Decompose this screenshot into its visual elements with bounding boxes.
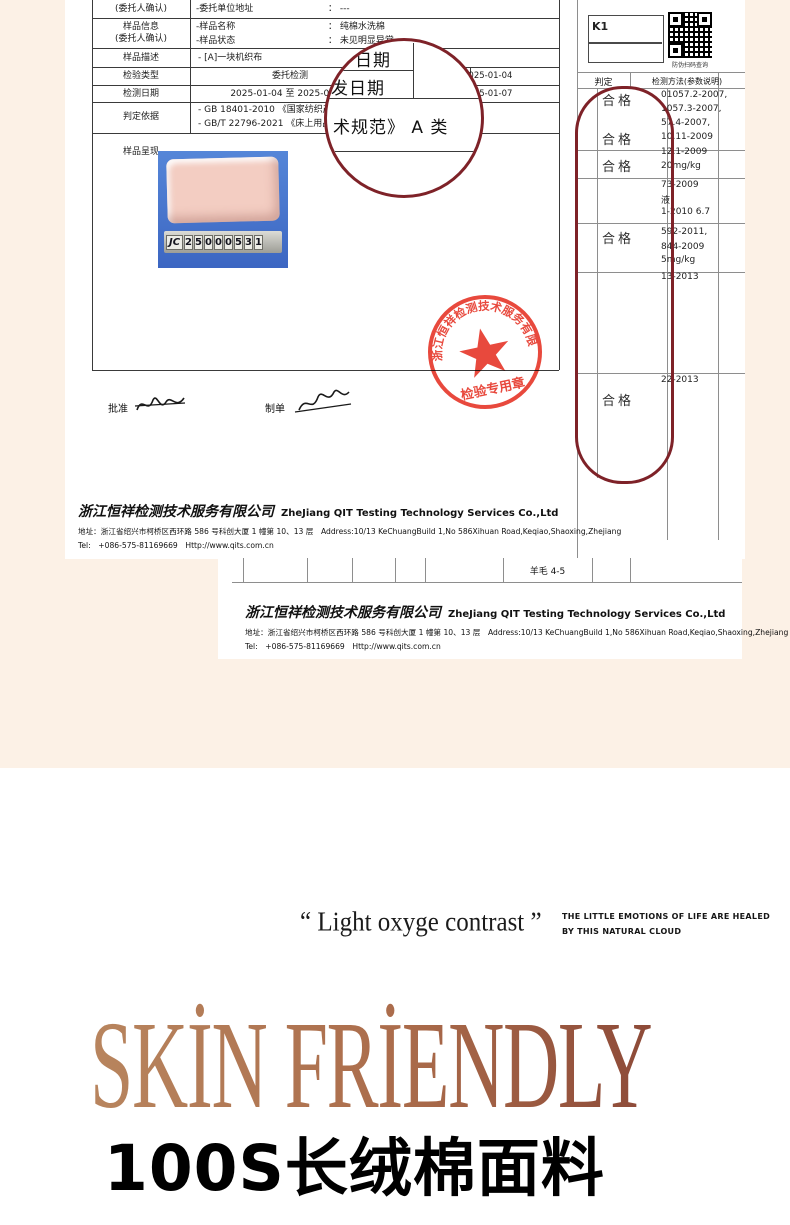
seal-star-icon [456, 323, 515, 379]
grid-line [395, 558, 396, 582]
plate-tile: 3 [244, 235, 253, 250]
approval-signature [133, 390, 189, 418]
sample-photo: JC 2 5 0 0 0 5 3 1 [158, 151, 288, 268]
grid-line [92, 85, 559, 86]
magnifier-capsule-overlay [575, 86, 674, 484]
company-name-cn: 浙江恒祥检测技术服务有限公司 [245, 602, 441, 622]
qr-finder-pattern [668, 12, 683, 27]
qr-finder-pattern [697, 12, 712, 27]
plate-tile: JC [166, 235, 183, 250]
row-label: 检测日期 [92, 88, 190, 100]
field-key: -样品名称 [196, 21, 235, 33]
marketing-headline: SKİN FRİENDLY [90, 1002, 651, 1130]
lens-text: 术规范》 A 类 [333, 113, 448, 138]
grid-line [335, 151, 475, 152]
grid-line [232, 582, 742, 583]
plate-tile: 5 [234, 235, 243, 250]
field-key: -样品状态 [196, 35, 235, 47]
field-value: - [A]一块机织布 [198, 52, 262, 64]
results-header-method: 检测方法(参数说明) [631, 76, 743, 87]
grid-line [559, 0, 560, 370]
plate-tile: 5 [194, 235, 203, 250]
row-label: 检验类型 [92, 70, 190, 82]
plate-tile: 0 [224, 235, 233, 250]
grid-line [425, 558, 426, 582]
fabric-sample [166, 157, 280, 224]
field-key: -委托单位地址 [196, 3, 253, 15]
report-footer: 浙江恒祥检测技术服务有限公司 ZheJiang QIT Testing Tech… [78, 501, 638, 551]
grid-line [92, 18, 559, 19]
company-name-cn: 浙江恒祥检测技术服务有限公司 [78, 501, 274, 521]
lens-text: 发日期 [331, 74, 385, 99]
method-ref: 1057.3-2007, [661, 104, 722, 114]
row-label: (委托人确认) [92, 3, 190, 15]
inspection-report-page-1: (委托人确认) -委托单位地址 ： --- 样品信息 (委托人确认) -样品名称… [65, 0, 745, 559]
row-label: (委托人确认) [92, 33, 190, 45]
method-ref: 01057.2-2007, [661, 90, 727, 100]
anti-fake-qr-code [668, 12, 712, 58]
inspection-seal-stamp: 浙江恒祥检测技术服务有限公司 检验专用章 [414, 281, 556, 423]
preparer-label: 制单 [265, 400, 285, 415]
grid-line [577, 88, 745, 89]
preparer-signature [293, 386, 355, 418]
magnifier-circle-overlay: 日期 发日期 术规范》 A 类 [324, 38, 484, 198]
marketing-tagline-line1: THE LITTLE EMOTIONS OF LIFE ARE HEALED [562, 912, 770, 921]
approve-label: 批准 [108, 400, 128, 415]
field-value: ： 纯棉水洗棉 [328, 21, 385, 33]
row-label: 样品信息 [92, 21, 190, 33]
product-detail-image: (委托人确认) -委托单位地址 ： --- 样品信息 (委托人确认) -样品名称… [0, 0, 790, 1225]
report-code-box: K1 [588, 15, 664, 63]
grid-line [630, 558, 631, 582]
row-label: 样品描述 [92, 52, 190, 64]
grid-line [577, 72, 745, 73]
grid-line [190, 0, 191, 133]
plate-tile: 2 [184, 235, 193, 250]
wool-result-cell: 羊毛 4-5 [503, 564, 592, 577]
grid-line [243, 558, 244, 582]
inspection-report-page-2: 羊毛 4-5 浙江恒祥检测技术服务有限公司 ZheJiang QIT Testi… [218, 558, 742, 659]
company-address: 地址：浙江省绍兴市柯桥区西环路 586 号科创大厦 1 幢第 10、13 层 A… [78, 526, 638, 537]
plate-tile: 0 [214, 235, 223, 250]
row-label: 判定依据 [92, 111, 190, 123]
grid-line [352, 558, 353, 582]
lens-text: 日期 [355, 46, 391, 71]
field-value: ： --- [328, 3, 350, 15]
marketing-subheadline: 100S长绒棉面料 [104, 1118, 605, 1209]
grid-line [92, 67, 559, 68]
company-name-en: ZheJiang QIT Testing Technology Services… [281, 508, 558, 519]
qr-finder-pattern [668, 43, 683, 58]
company-name-en: ZheJiang QIT Testing Technology Services… [448, 609, 725, 620]
grid-line [718, 72, 719, 540]
grid-line [413, 43, 414, 98]
grid-line [592, 558, 593, 582]
report-code: K1 [592, 20, 608, 33]
qr-caption: 防伪扫码查询 [661, 60, 719, 69]
report-footer: 浙江恒祥检测技术服务有限公司 ZheJiang QIT Testing Tech… [245, 602, 740, 652]
grid-line [307, 558, 308, 582]
plate-tile: 1 [254, 235, 263, 250]
company-tel: Tel: +086-575-81169669 Http://www.qits.c… [245, 641, 740, 652]
grid-line [92, 48, 559, 49]
plate-tile: 0 [204, 235, 213, 250]
marketing-tagline-line2: BY THIS NATURAL CLOUD [562, 927, 681, 936]
sample-id-plate: JC 2 5 0 0 0 5 3 1 [164, 231, 282, 253]
company-address: 地址：浙江省绍兴市柯桥区西环路 586 号科创大厦 1 幢第 10、13 层 A… [245, 627, 740, 638]
company-tel: Tel: +086-575-81169669 Http://www.qits.c… [78, 540, 638, 551]
marketing-quote: “ Light oxyge contrast ” [300, 908, 540, 938]
grid-line [588, 42, 662, 44]
